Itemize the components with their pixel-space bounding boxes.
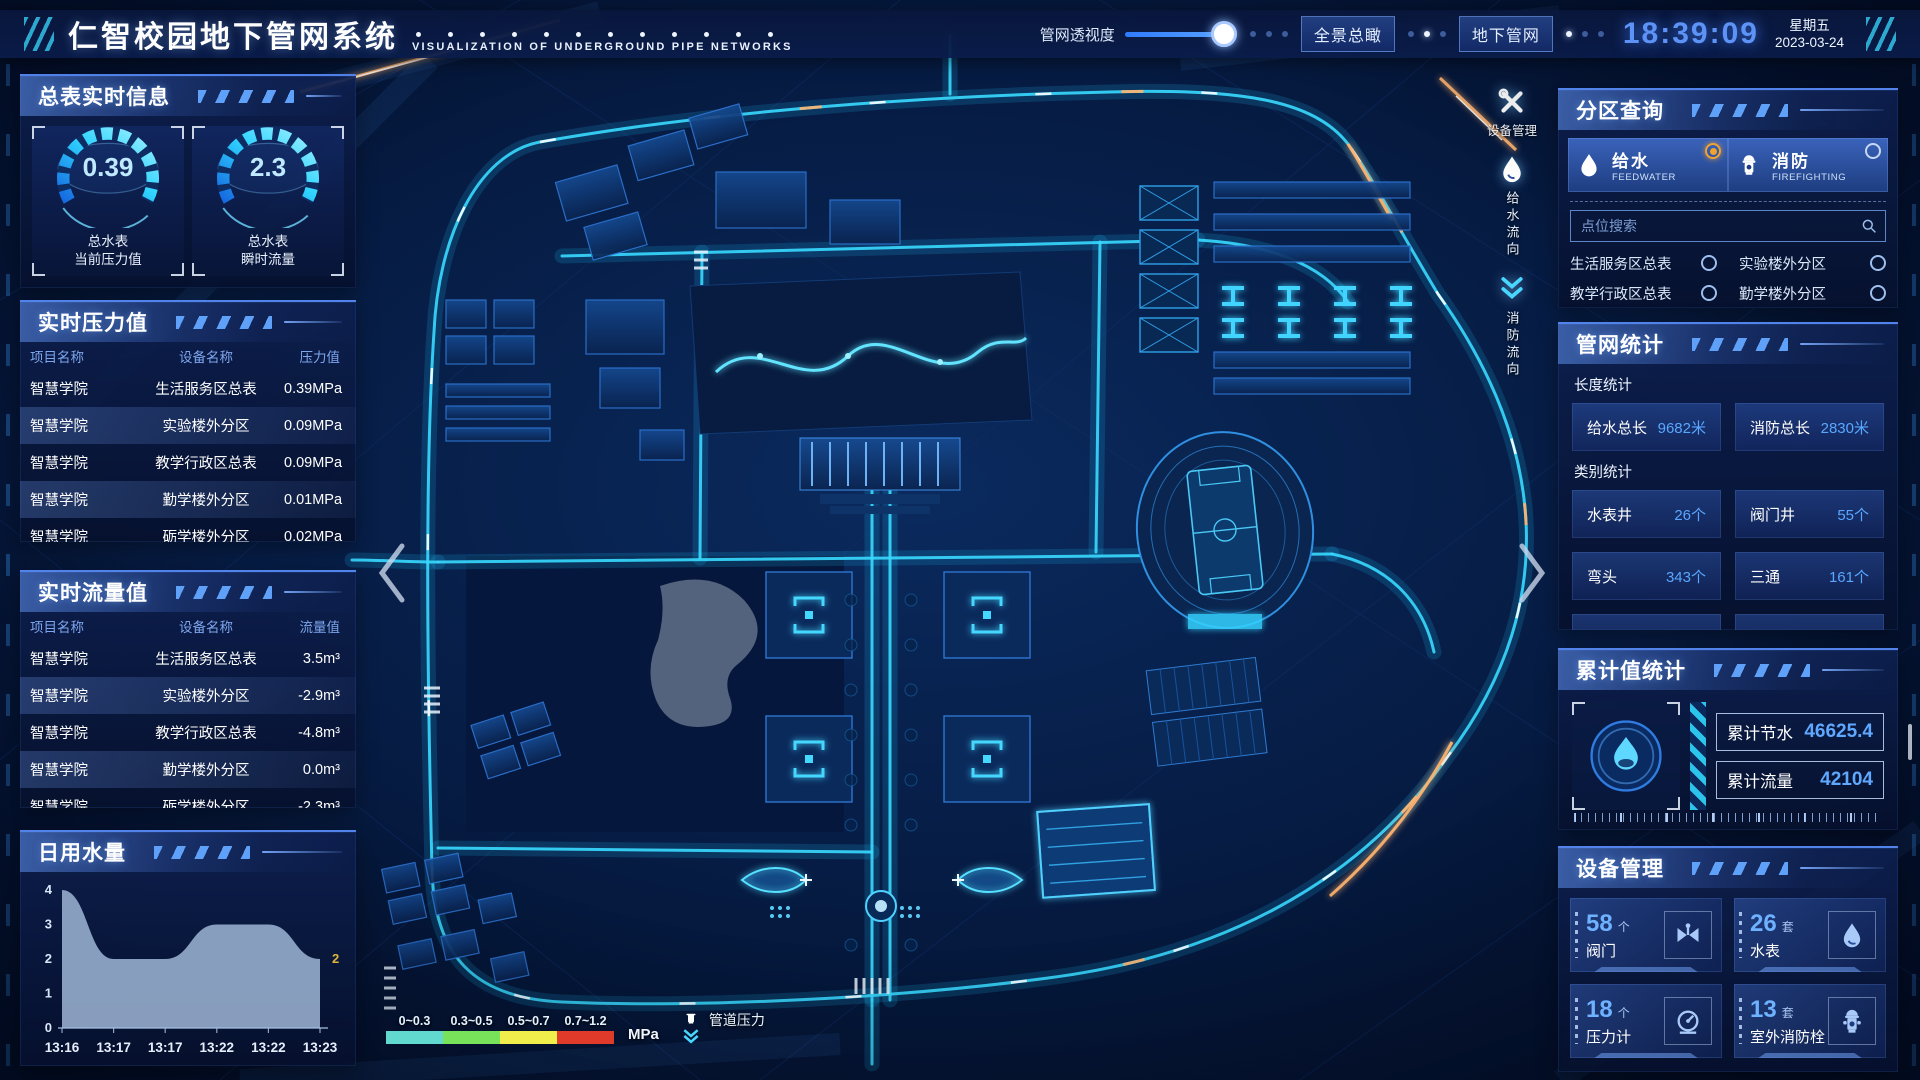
- zone-option-label: 生活服务区总表: [1570, 253, 1672, 274]
- pipe-opacity-slider[interactable]: [1125, 32, 1237, 37]
- clock-time: 18:39:09: [1623, 17, 1759, 51]
- tab-feedwater[interactable]: 给水 FEEDWATER: [1568, 138, 1728, 192]
- table-row[interactable]: 智慧学院生活服务区总表3.5m³: [20, 640, 356, 677]
- tab-label: 消防: [1772, 147, 1846, 172]
- panel-realtime-pressure: 实时压力值 项目名称 设备名称 压力值 智慧学院生活服务区总表0.39MPa 智…: [20, 300, 356, 542]
- gauge-flow: 2.3 总水表瞬时流量: [192, 126, 344, 276]
- map-next-arrow[interactable]: [1514, 540, 1550, 606]
- cumulative-saved-water: 累计节水46625.4: [1716, 713, 1884, 751]
- svg-text:2: 2: [332, 951, 339, 966]
- table-row[interactable]: 智慧学院实验楼外分区0.09MPa: [20, 407, 356, 444]
- flow-arrows-icon: [1497, 274, 1527, 304]
- zone-option[interactable]: 勤学楼外分区: [1739, 278, 1886, 308]
- svg-text:2: 2: [45, 951, 52, 966]
- line-decoration: [1822, 669, 1884, 671]
- stat-box: 弯头343个: [1572, 552, 1721, 600]
- legend-range-label: 0.3~0.5: [450, 1014, 492, 1028]
- legend-swatch: [386, 1031, 443, 1044]
- pipe-opacity-label: 管网透视度: [1040, 24, 1115, 45]
- panel-title: 累计值统计: [1576, 655, 1686, 685]
- legend-swatch: [500, 1031, 557, 1044]
- zone-option[interactable]: 实验楼外分区: [1739, 248, 1886, 278]
- map-tool-label: 设备管理: [1487, 120, 1537, 139]
- slash-decoration: [198, 90, 294, 103]
- feedwater-flow-button[interactable]: [1492, 149, 1532, 189]
- zone-option[interactable]: 生活服务区总表: [1570, 248, 1717, 278]
- gauge-label: 总水表瞬时流量: [192, 233, 344, 269]
- table-row[interactable]: 智慧学院砺学楼外分区-2.3m³: [20, 788, 356, 808]
- stat-box: 给水总长9682米: [1572, 403, 1721, 451]
- slider-fill: [1125, 32, 1221, 37]
- left-edge-decoration: [6, 64, 10, 1080]
- table-row[interactable]: 智慧学院勤学楼外分区0.0m³: [20, 751, 356, 788]
- panel-title: 设备管理: [1576, 853, 1664, 883]
- svg-text:0: 0: [45, 1020, 52, 1035]
- water-emblem: [1572, 702, 1680, 810]
- stat-box-clipped: [1572, 614, 1721, 630]
- zone-option[interactable]: 教学行政区总表: [1570, 278, 1717, 308]
- tab-sublabel: FEEDWATER: [1612, 172, 1676, 183]
- slider-thumb[interactable]: [1211, 21, 1237, 47]
- panel-device-management: 设备管理 58个 阀门 26套 水表 18个: [1558, 846, 1898, 1072]
- radio-icon: [1701, 255, 1717, 271]
- gauge-value: 0.39: [83, 152, 134, 182]
- slash-decoration: [176, 586, 272, 599]
- clock-weekday: 星期五: [1789, 17, 1830, 34]
- table-row[interactable]: 智慧学院教学行政区总表-4.8m³: [20, 714, 356, 751]
- legend-swatch: [443, 1031, 500, 1044]
- svg-text:13:17: 13:17: [96, 1040, 131, 1055]
- hydrant-icon: [682, 1010, 700, 1028]
- right-scroll-indicator[interactable]: [1908, 724, 1912, 760]
- gauge-dial: 0.39: [33, 126, 183, 228]
- length-section-label: 长度统计: [1574, 374, 1898, 395]
- table-row[interactable]: 智慧学院实验楼外分区-2.9m³: [20, 677, 356, 714]
- zone-option-label: 实验楼外分区: [1739, 253, 1826, 274]
- overview-button[interactable]: 全景总瞰: [1301, 16, 1395, 52]
- dot-separator: [1408, 31, 1446, 37]
- stat-box: 水表井26个: [1572, 490, 1721, 538]
- device-card-hydrants[interactable]: 13套 室外消防栓: [1734, 984, 1886, 1058]
- line-decoration: [1800, 343, 1884, 345]
- panel-title: 总表实时信息: [38, 81, 170, 111]
- panel-cumulative: 累计值统计 累计节水46625.4 累计流量42104: [1558, 648, 1898, 830]
- line-decoration: [1800, 109, 1884, 111]
- stat-box: 消防总长2830米: [1735, 403, 1884, 451]
- slash-decoration: [154, 846, 250, 859]
- table-row[interactable]: 智慧学院勤学楼外分区0.01MPa: [20, 481, 356, 518]
- device-card-pressure-gauges[interactable]: 18个 压力计: [1570, 984, 1722, 1058]
- panel-title: 实时压力值: [38, 307, 148, 337]
- chevron-left-icon: [374, 540, 410, 606]
- radio-icon: [1870, 285, 1886, 301]
- point-search-box[interactable]: [1570, 210, 1886, 242]
- gauge-label: 总水表当前压力值: [32, 233, 184, 269]
- pipe-pressure-indicator[interactable]: 管道压力: [681, 1010, 765, 1044]
- slash-decoration: [1714, 664, 1810, 677]
- gauge-dial: 2.3: [193, 126, 343, 228]
- svg-text:13:22: 13:22: [200, 1040, 235, 1055]
- cumulative-flow: 累计流量42104: [1716, 761, 1884, 799]
- radio-icon: [1870, 255, 1886, 271]
- zone-option-label: 勤学楼外分区: [1739, 283, 1826, 304]
- pressure-gauge-icon: [1674, 1007, 1702, 1035]
- search-icon[interactable]: [1861, 218, 1877, 234]
- table-row[interactable]: 智慧学院教学行政区总表0.09MPa: [20, 444, 356, 481]
- svg-text:13:17: 13:17: [148, 1040, 183, 1055]
- table-row[interactable]: 智慧学院生活服务区总表0.39MPa: [20, 370, 356, 407]
- stat-box-clipped: [1735, 614, 1884, 630]
- panel-zone-query: 分区查询 给水 FEEDWATER 消防 FIRE: [1558, 88, 1898, 308]
- water-drop-icon: [1588, 718, 1664, 794]
- tab-sublabel: FIREFIGHTING: [1772, 172, 1846, 183]
- dot-separator: [1250, 31, 1288, 37]
- map-tools-column: 设备管理 给水流向 消防流向: [1474, 82, 1550, 389]
- svg-text:3: 3: [45, 917, 52, 932]
- ruler-decoration: [1574, 813, 1882, 822]
- stripe-decoration: [1690, 702, 1706, 810]
- legend-swatch: [557, 1031, 614, 1044]
- fire-flow-button[interactable]: [1492, 269, 1532, 309]
- svg-text:13:16: 13:16: [45, 1040, 80, 1055]
- panel-title: 实时流量值: [38, 577, 148, 607]
- legend-range-label: 0.7~1.2: [564, 1014, 606, 1028]
- svg-text:1: 1: [45, 986, 52, 1001]
- radio-icon: [1865, 143, 1881, 159]
- slash-decoration: [1692, 104, 1788, 117]
- valve-icon: [1674, 921, 1702, 949]
- daily-water-chart: 0123413:1613:1713:1713:2213:2213:232: [26, 876, 350, 1062]
- dashed-divider: [1570, 201, 1886, 202]
- gauge-value: 2.3: [250, 152, 286, 182]
- line-decoration: [306, 95, 342, 97]
- hydrant-icon: [1736, 152, 1762, 178]
- panel-title: 分区查询: [1576, 95, 1664, 125]
- tools-icon: [1495, 85, 1529, 119]
- panel-meters-realtime: 总表实时信息 0.39 总水表当前压力值: [20, 74, 356, 288]
- chevron-right-icon: [1514, 540, 1550, 606]
- water-meter-icon: [1838, 921, 1866, 949]
- chevron-down-icon: [681, 1028, 701, 1044]
- pressure-legend: 0~0.3 0.3~0.5 0.5~0.7 0.7~1.2 MPa 管道压力: [386, 1010, 765, 1044]
- svg-text:13:23: 13:23: [303, 1040, 338, 1055]
- water-drop-icon: [1576, 152, 1602, 178]
- panel-daily-water: 日用水量 0123413:1613:1713:1713:2213:2213:23…: [20, 830, 356, 1066]
- panel-network-stats: 管网统计 长度统计 给水总长9682米 消防总长2830米 类别统计 水表井26…: [1558, 322, 1898, 630]
- stat-box: 阀门井55个: [1735, 490, 1884, 538]
- title-dots-decoration: [416, 32, 793, 37]
- top-header: 仁智校园地下管网系统 VISUALIZATION OF UNDERGROUND …: [0, 10, 1920, 58]
- slash-decoration: [1692, 862, 1788, 875]
- panel-realtime-flow: 实时流量值 项目名称 设备名称 流量值 智慧学院生活服务区总表3.5m³ 智慧学…: [20, 570, 356, 808]
- table-header: 项目名称 设备名称 流量值: [20, 612, 356, 640]
- dashboard-screen: 仁智校园地下管网系统 VISUALIZATION OF UNDERGROUND …: [0, 0, 1920, 1080]
- svg-text:4: 4: [45, 882, 53, 897]
- search-input[interactable]: [1579, 217, 1861, 235]
- map-tool-label: 给水流向: [1503, 191, 1522, 259]
- slash-decoration: [176, 316, 272, 329]
- line-decoration: [284, 591, 342, 593]
- tab-label: 给水: [1612, 147, 1676, 172]
- radio-selected-icon: [1705, 143, 1721, 159]
- underground-button[interactable]: 地下管网: [1459, 16, 1553, 52]
- svg-text:13:22: 13:22: [251, 1040, 286, 1055]
- clock-date: 2023-03-24: [1775, 34, 1844, 51]
- legend-range-label: 0.5~0.7: [507, 1014, 549, 1028]
- hydrant-icon: [1838, 1007, 1866, 1035]
- gauge-pressure: 0.39 总水表当前压力值: [32, 126, 184, 276]
- line-decoration: [284, 321, 342, 323]
- water-drop-icon: [1497, 154, 1527, 184]
- right-edge-decoration: [1912, 64, 1916, 1080]
- panel-title: 日用水量: [38, 837, 126, 867]
- line-decoration: [262, 851, 342, 853]
- header-right-stripes: [1866, 17, 1896, 51]
- app-title: 仁智校园地下管网系统: [68, 12, 398, 56]
- table-row[interactable]: 智慧学院砺学楼外分区0.02MPa: [20, 518, 356, 542]
- line-decoration: [1800, 867, 1884, 869]
- tab-firefighting[interactable]: 消防 FIREFIGHTING: [1728, 138, 1888, 192]
- stat-box: 三通161个: [1735, 552, 1884, 600]
- map-prev-arrow[interactable]: [374, 540, 410, 606]
- device-card-valves[interactable]: 58个 阀门: [1570, 898, 1722, 972]
- device-manage-map-button[interactable]: [1492, 82, 1532, 122]
- radio-icon: [1701, 285, 1717, 301]
- category-section-label: 类别统计: [1574, 461, 1898, 482]
- header-left-stripes: [24, 17, 54, 51]
- pipe-pressure-label: 管道压力: [709, 1010, 765, 1044]
- map-tool-label: 消防流向: [1503, 311, 1522, 379]
- legend-range-label: 0~0.3: [399, 1014, 431, 1028]
- app-subtitle: VISUALIZATION OF UNDERGROUND PIPE NETWOR…: [412, 41, 793, 53]
- dot-separator: [1566, 31, 1604, 37]
- table-header: 项目名称 设备名称 压力值: [20, 342, 356, 370]
- slash-decoration: [1692, 338, 1788, 351]
- zone-option-label: 教学行政区总表: [1570, 283, 1672, 304]
- device-card-water-meters[interactable]: 26套 水表: [1734, 898, 1886, 972]
- panel-title: 管网统计: [1576, 329, 1664, 359]
- legend-unit: MPa: [628, 1026, 659, 1044]
